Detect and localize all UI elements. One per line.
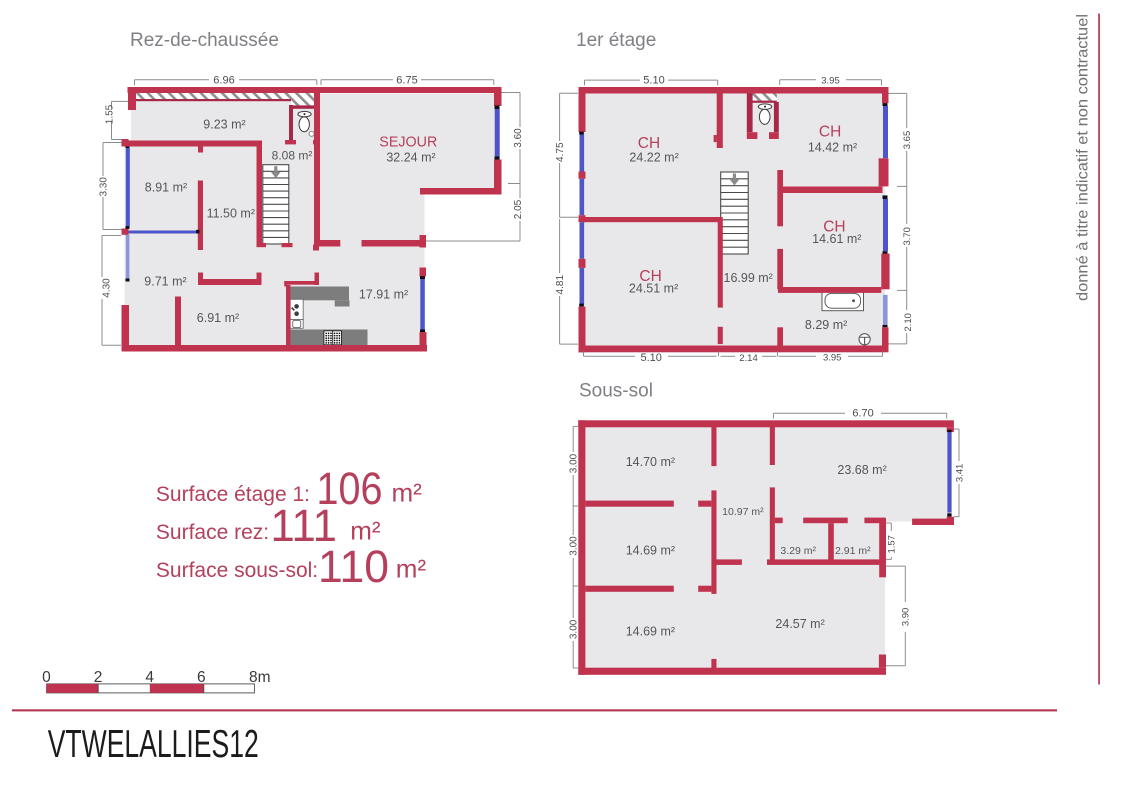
svg-text:6.70: 6.70 <box>852 408 873 420</box>
svg-text:6.96: 6.96 <box>213 74 234 86</box>
svg-text:10.97 m²: 10.97 m² <box>722 506 764 518</box>
svg-text:11.50 m²: 11.50 m² <box>207 207 255 221</box>
svg-text:3.95: 3.95 <box>823 353 842 364</box>
svg-text:3.95: 3.95 <box>821 75 840 86</box>
svg-text:8.08 m²: 8.08 m² <box>272 149 313 163</box>
svg-text:2.10: 2.10 <box>903 313 914 332</box>
svg-text:9.71 m²: 9.71 m² <box>144 274 186 288</box>
svg-text:Sous-sol: Sous-sol <box>579 381 653 402</box>
svg-text:24.57 m²: 24.57 m² <box>775 617 824 631</box>
svg-text:3.00: 3.00 <box>568 536 579 556</box>
svg-text:16.99 m²: 16.99 m² <box>724 271 773 285</box>
svg-text:3.00: 3.00 <box>568 453 579 473</box>
svg-text:2.91 m²: 2.91 m² <box>835 545 871 557</box>
svg-text:3.70: 3.70 <box>902 227 913 246</box>
svg-text:24.51 m²: 24.51 m² <box>629 282 678 296</box>
svg-text:9.23 m²: 9.23 m² <box>203 118 245 132</box>
svg-text:14.42 m²: 14.42 m² <box>808 140 857 154</box>
svg-text:3.41: 3.41 <box>955 464 966 483</box>
svg-text:2.14: 2.14 <box>739 353 758 364</box>
svg-text:SEJOUR: SEJOUR <box>379 134 437 150</box>
svg-text:4.75: 4.75 <box>555 142 566 162</box>
svg-text:Surface rez:: Surface rez: <box>156 521 269 544</box>
svg-text:3.29 m²: 3.29 m² <box>780 545 816 557</box>
svg-text:2: 2 <box>94 669 103 686</box>
svg-text:14.70 m²: 14.70 m² <box>626 455 675 469</box>
svg-text:24.22 m²: 24.22 m² <box>629 151 678 165</box>
svg-text:3.30: 3.30 <box>98 177 109 197</box>
svg-text:1er étage: 1er étage <box>576 30 656 51</box>
svg-text:5.10: 5.10 <box>640 352 661 364</box>
svg-text:17.91 m²: 17.91 m² <box>359 288 408 302</box>
svg-text:8.91 m²: 8.91 m² <box>145 181 187 195</box>
svg-text:1.55: 1.55 <box>105 104 116 124</box>
svg-text:0: 0 <box>42 669 51 686</box>
svg-text:VTWELALLIES12: VTWELALLIES12 <box>48 723 259 766</box>
svg-text:1.57: 1.57 <box>887 535 898 554</box>
svg-text:32.24 m²: 32.24 m² <box>386 151 435 165</box>
svg-text:CH: CH <box>819 124 841 141</box>
svg-text:3.90: 3.90 <box>901 608 912 627</box>
svg-text:6.75: 6.75 <box>396 74 417 86</box>
svg-text:14.69 m²: 14.69 m² <box>626 543 675 557</box>
svg-text:m²: m² <box>396 554 427 584</box>
svg-text:3.60: 3.60 <box>513 128 524 148</box>
svg-text:Surface sous-sol:: Surface sous-sol: <box>156 559 318 582</box>
svg-text:3.65: 3.65 <box>902 131 913 150</box>
svg-text:donné à titre indicatif et non: donné à titre indicatif et non contractu… <box>1075 14 1092 301</box>
svg-text:8.29 m²: 8.29 m² <box>805 318 847 332</box>
svg-text:4.81: 4.81 <box>555 275 566 295</box>
svg-text:4: 4 <box>145 669 154 686</box>
svg-text:Rez-de-chaussée: Rez-de-chaussée <box>130 30 279 51</box>
svg-text:3.00: 3.00 <box>568 619 579 639</box>
svg-text:14.61 m²: 14.61 m² <box>812 232 861 246</box>
svg-text:4.30: 4.30 <box>102 278 113 298</box>
svg-text:23.68 m²: 23.68 m² <box>837 463 886 477</box>
svg-text:6.91 m²: 6.91 m² <box>197 311 239 325</box>
svg-text:8m: 8m <box>249 669 271 686</box>
svg-text:6: 6 <box>197 669 206 686</box>
svg-text:14.69 m²: 14.69 m² <box>626 625 675 639</box>
svg-text:2.05: 2.05 <box>513 199 524 219</box>
svg-text:m²: m² <box>392 478 423 508</box>
svg-text:110: 110 <box>318 542 389 592</box>
svg-text:5.10: 5.10 <box>643 75 664 87</box>
